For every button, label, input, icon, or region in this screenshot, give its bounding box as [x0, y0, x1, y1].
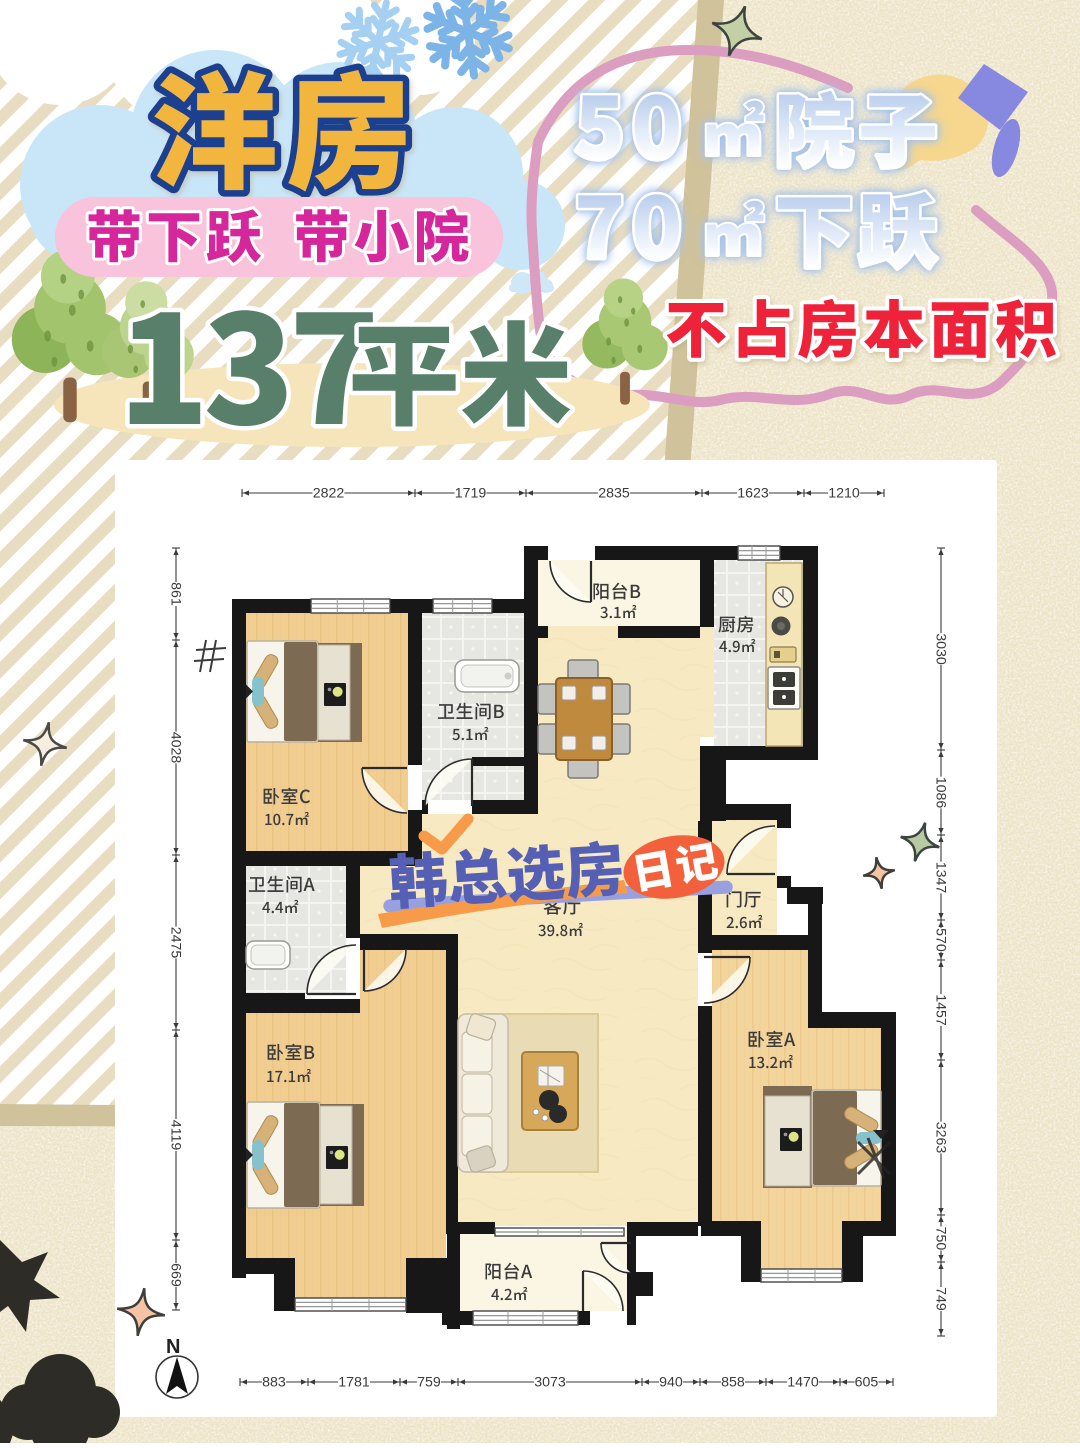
svg-text:1470: 1470 [787, 1375, 819, 1391]
svg-text:1623: 1623 [737, 486, 769, 502]
svg-text:2475: 2475 [168, 927, 184, 959]
svg-text:570: 570 [933, 928, 949, 952]
svg-text:1210: 1210 [828, 486, 860, 502]
svg-text:4119: 4119 [168, 1120, 184, 1151]
svg-text:3073: 3073 [534, 1375, 566, 1391]
svg-text:4028: 4028 [168, 732, 184, 764]
svg-text:1719: 1719 [455, 486, 487, 502]
svg-text:1781: 1781 [338, 1375, 370, 1391]
svg-text:2822: 2822 [313, 486, 345, 502]
svg-text:1457: 1457 [933, 994, 949, 1026]
svg-text:605: 605 [855, 1375, 879, 1391]
svg-text:940: 940 [659, 1375, 683, 1391]
svg-text:1086: 1086 [933, 777, 949, 809]
svg-text:861: 861 [168, 582, 184, 606]
svg-text:N: N [166, 1336, 180, 1358]
svg-text:3030: 3030 [933, 633, 949, 665]
svg-text:858: 858 [721, 1375, 745, 1391]
svg-text:669: 669 [168, 1263, 184, 1287]
svg-text:883: 883 [262, 1375, 286, 1391]
svg-text:2835: 2835 [598, 486, 630, 502]
svg-text:759: 759 [417, 1375, 441, 1391]
svg-text:3263: 3263 [933, 1122, 949, 1154]
svg-text:1347: 1347 [933, 862, 949, 894]
svg-text:749: 749 [933, 1287, 949, 1311]
svg-text:750: 750 [933, 1227, 949, 1251]
